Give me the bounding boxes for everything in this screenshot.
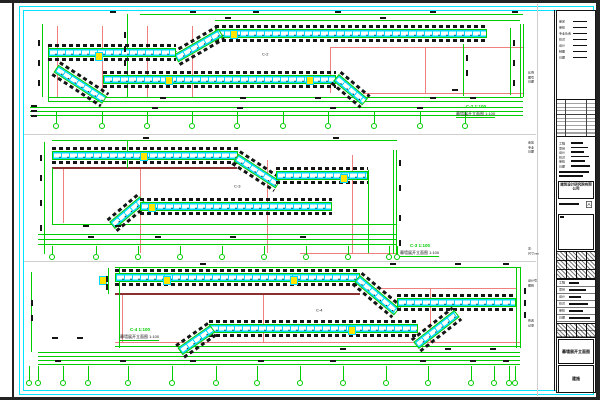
- cad-sheet: C-2C-2 1:100幕墙展开立面图 1:100C-3C-3 1:100幕墙展…: [0, 0, 600, 400]
- margin-note-line: 记录: [528, 323, 534, 328]
- margin-note-line: 设计号: [528, 278, 537, 283]
- margin-note-line: 日期: [528, 149, 534, 154]
- margin-note-line: 日期: [528, 79, 534, 84]
- margin-note-line: 比例: [528, 70, 534, 75]
- margin-note-line: 会签: [528, 140, 534, 145]
- margin-notes: 比例图号日期会签专业日期注:尺寸mm设计号图别修改记录: [0, 0, 600, 400]
- margin-note-line: 尺寸mm: [528, 251, 539, 256]
- margin-note-line: 图别: [528, 283, 534, 288]
- margin-note-line: 注:: [528, 246, 532, 251]
- margin-note-line: 修改: [528, 318, 534, 323]
